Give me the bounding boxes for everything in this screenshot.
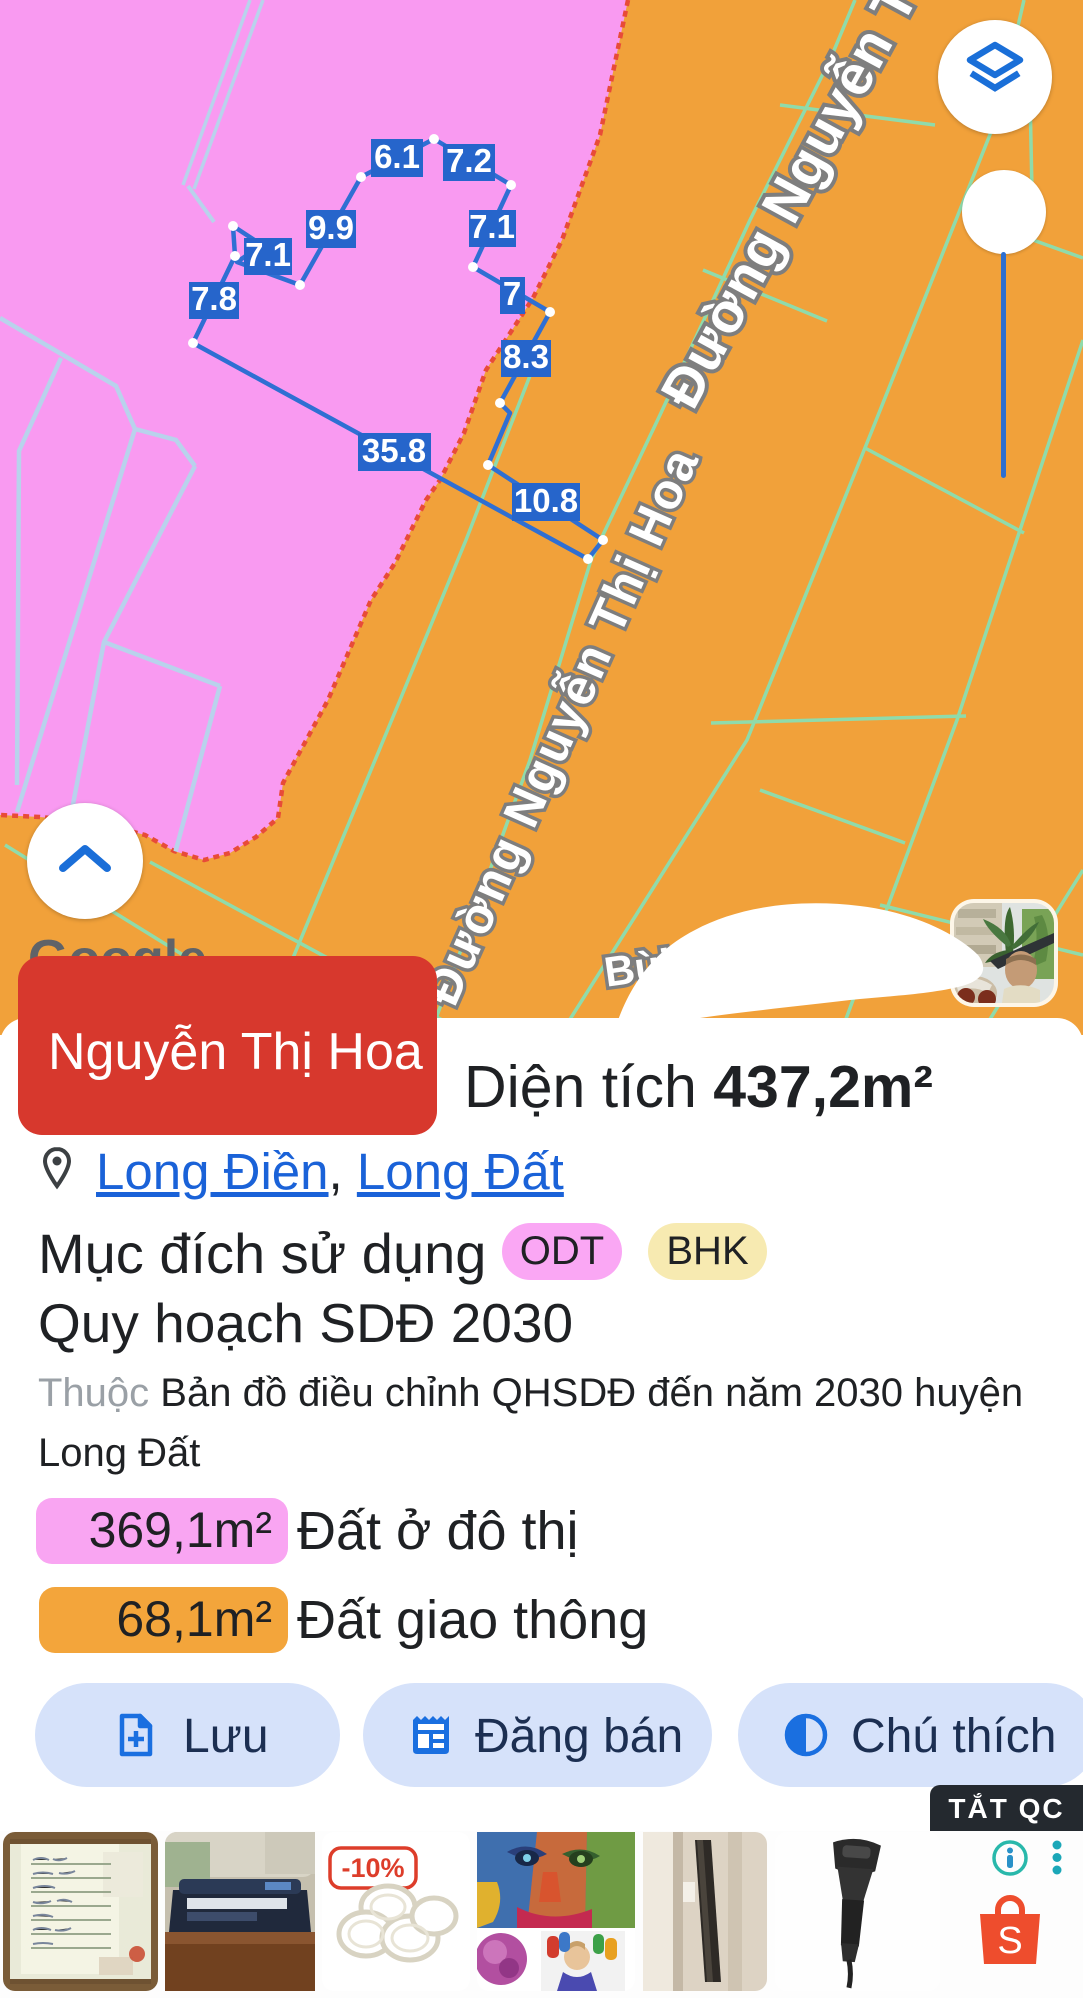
svg-text:8.3: 8.3 (503, 338, 549, 375)
svg-text:7.2: 7.2 (446, 142, 492, 179)
svg-text:-10%: -10% (341, 1853, 404, 1883)
svg-text:10.8: 10.8 (514, 482, 578, 519)
svg-text:7.1: 7.1 (469, 208, 515, 245)
svg-text:9.9: 9.9 (308, 209, 354, 246)
svg-text:7.8: 7.8 (191, 280, 237, 317)
svg-text:7.1: 7.1 (245, 236, 291, 273)
svg-text:7: 7 (503, 275, 521, 312)
svg-text:S: S (997, 1920, 1022, 1962)
svg-text:6.1: 6.1 (374, 138, 420, 175)
svg-text:35.8: 35.8 (362, 432, 426, 469)
